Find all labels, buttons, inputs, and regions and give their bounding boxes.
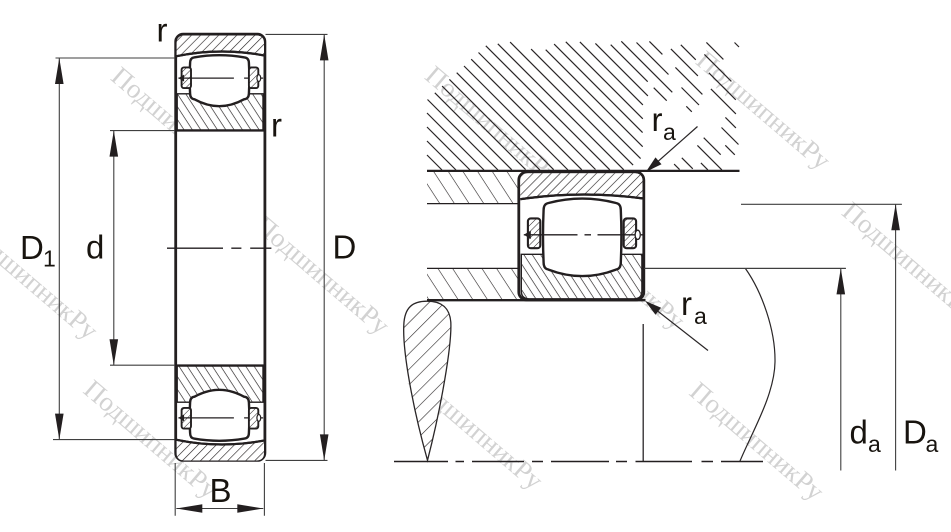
- svg-text:a: a: [926, 431, 939, 457]
- svg-text:1: 1: [43, 246, 56, 272]
- svg-text:r: r: [157, 12, 168, 49]
- svg-text:ПодшипникРу: ПодшипникРу: [250, 210, 396, 341]
- svg-text:r: r: [681, 285, 692, 322]
- svg-text:D: D: [333, 229, 357, 266]
- svg-text:ПодшипникРу: ПодшипникРу: [691, 45, 837, 176]
- svg-text:d: d: [850, 414, 868, 451]
- svg-text:d: d: [86, 229, 104, 266]
- svg-text:r: r: [652, 101, 663, 138]
- svg-text:r: r: [271, 107, 282, 144]
- svg-text:a: a: [694, 303, 707, 329]
- svg-text:a: a: [868, 431, 881, 457]
- svg-text:B: B: [210, 472, 232, 509]
- svg-text:ПодшипникРу: ПодшипникРу: [684, 376, 830, 507]
- svg-text:a: a: [663, 119, 676, 145]
- svg-text:D: D: [903, 414, 927, 451]
- svg-text:D: D: [20, 229, 44, 266]
